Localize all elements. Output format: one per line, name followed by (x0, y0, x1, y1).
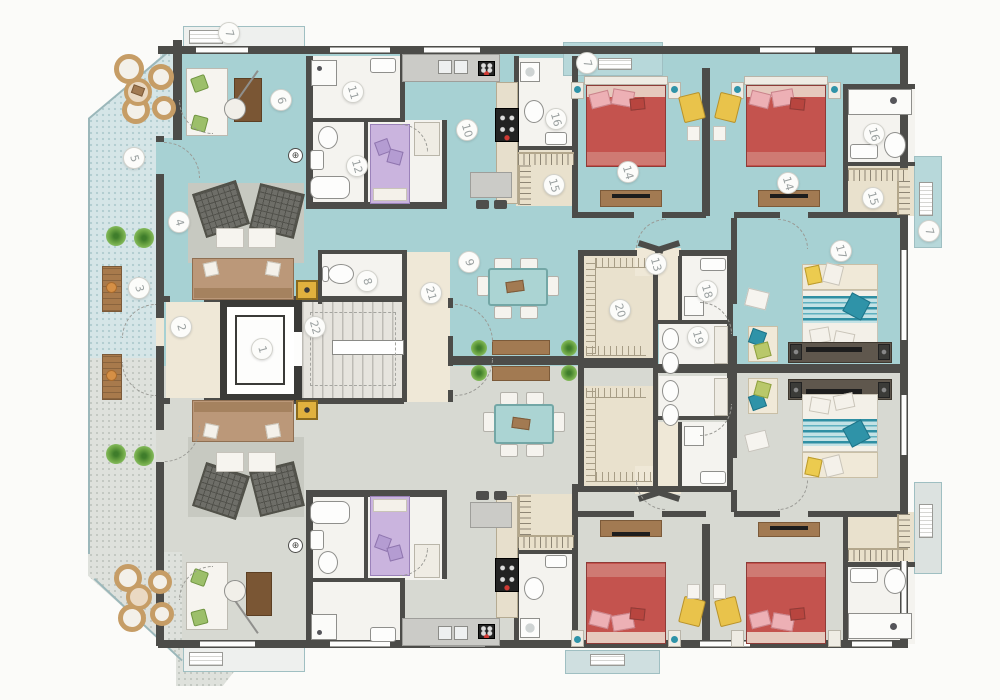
tv (770, 526, 808, 530)
elevator-shaft-wall (220, 300, 302, 307)
cat (106, 370, 117, 381)
window (901, 250, 907, 340)
window (760, 47, 815, 53)
dining-chair (547, 276, 559, 296)
wall (306, 578, 402, 582)
window (852, 641, 892, 647)
closet-hangers (848, 168, 908, 181)
toilet (884, 568, 906, 594)
bed-pillow (629, 607, 645, 621)
side-table (687, 126, 700, 141)
sink-basin (662, 352, 679, 374)
coffee-table (216, 452, 244, 472)
throw-pillow (203, 423, 220, 440)
throw-pillow (203, 261, 220, 278)
sink (700, 471, 726, 484)
lobby-floor (166, 302, 222, 398)
bed-sheet-band (747, 632, 825, 643)
wall (442, 490, 447, 579)
washing-machine (520, 62, 540, 82)
wall-unit-divider (731, 364, 908, 373)
wardrobe-row (586, 258, 596, 354)
stove (495, 558, 519, 592)
wall (306, 118, 402, 122)
closet-hangers (897, 514, 910, 548)
nightstand (828, 630, 841, 647)
elevator-shaft-wall (220, 300, 227, 401)
wall (679, 250, 733, 256)
shower-head (317, 66, 322, 71)
wall (734, 212, 780, 218)
speaker (790, 344, 802, 360)
round-chair (152, 96, 176, 120)
speaker (790, 382, 802, 398)
table-centerpiece (511, 417, 530, 430)
sink (545, 132, 567, 145)
shower (311, 614, 337, 640)
toilet (328, 264, 354, 284)
throw-pillow (265, 423, 281, 439)
sink (850, 568, 878, 583)
tv (612, 532, 650, 536)
bed-pillow (809, 396, 831, 414)
kitchen-sink (454, 60, 468, 74)
coffee-table (248, 452, 276, 472)
door-sensor-icon: ⊕ (288, 148, 303, 163)
lamp (671, 636, 678, 643)
dining-chair (553, 412, 565, 432)
dining-chair (520, 306, 538, 319)
window (901, 395, 907, 455)
wall (364, 492, 368, 580)
bed-pillow (373, 188, 407, 201)
wood-desk (246, 572, 272, 616)
ac-unit (919, 182, 933, 216)
round-chair (148, 570, 172, 594)
floor-plan: ⊕ ⊕ 123456777891011121314141515161617181… (0, 0, 1000, 700)
kitchen-sink (454, 626, 468, 640)
cooktop (478, 61, 495, 76)
headboard (744, 76, 828, 85)
plant (561, 340, 577, 356)
cat (106, 282, 117, 293)
bar-counter (470, 172, 512, 198)
throw-pillow (265, 261, 281, 277)
lamp (734, 86, 741, 93)
bed-fold (747, 152, 825, 165)
side-table (687, 584, 700, 599)
wall (364, 120, 368, 208)
elevator-door-opening (294, 332, 302, 366)
nightstand (731, 630, 744, 647)
shower (848, 89, 912, 115)
wall (702, 524, 710, 642)
wall (702, 68, 710, 216)
tv (770, 194, 808, 198)
wardrobe-row (586, 388, 596, 482)
ac-unit (189, 30, 223, 44)
wall (662, 212, 706, 218)
shower (848, 613, 912, 639)
shower-head (317, 630, 322, 635)
toilet (524, 577, 544, 600)
sink (370, 627, 396, 642)
bar-stool (476, 491, 489, 500)
ac-unit (919, 504, 933, 538)
bed-fold (587, 564, 665, 577)
toilet (318, 551, 338, 574)
console-table (492, 366, 550, 381)
wall-unit-divider (578, 358, 658, 368)
wall (572, 511, 634, 517)
wall (572, 484, 578, 644)
wall (734, 511, 780, 517)
wall (731, 490, 737, 512)
door-opening (156, 430, 164, 462)
floor-lamp (224, 98, 246, 120)
wall (173, 40, 182, 140)
console-table (492, 340, 550, 355)
hallway-floor (404, 252, 450, 402)
window (852, 47, 892, 53)
lamp (831, 86, 838, 93)
sofa-back (194, 288, 292, 298)
sink (370, 58, 396, 73)
sink (700, 258, 726, 271)
sink (850, 144, 878, 159)
wall (678, 256, 682, 320)
bathtub (310, 176, 350, 199)
washing-machine (520, 618, 540, 638)
wall (448, 390, 453, 402)
sink (545, 555, 567, 568)
wall (402, 250, 407, 402)
round-chair (150, 602, 174, 626)
bed-pillow (789, 97, 805, 111)
wardrobe-row (596, 258, 652, 268)
wall (843, 162, 915, 166)
kitchen-sink (438, 626, 452, 640)
window (424, 47, 480, 53)
side-table (713, 584, 726, 599)
window (196, 47, 248, 53)
bed-fold (587, 152, 665, 165)
bed-pillow (373, 499, 407, 512)
plant (106, 226, 126, 246)
round-table (126, 584, 152, 610)
wall (318, 250, 406, 254)
wardrobe-row (586, 388, 646, 398)
side-table (296, 400, 318, 420)
shower-head (890, 97, 897, 104)
tv-dresser (600, 190, 662, 207)
wall (448, 298, 453, 308)
tv (612, 194, 650, 198)
round-chair (148, 64, 174, 90)
shower-head (890, 623, 897, 630)
sink-basin (662, 404, 679, 426)
bar-stool (494, 491, 507, 500)
toilet-tank (322, 266, 329, 282)
wall (572, 56, 578, 216)
door-sensor-glyph: ⊕ (292, 541, 300, 551)
window (200, 641, 255, 647)
closet-hangers (518, 495, 531, 535)
wall (731, 372, 737, 458)
tv (806, 347, 862, 352)
door-opening (156, 318, 164, 346)
bathtub (310, 501, 350, 524)
kitchen-sink (438, 60, 452, 74)
plant (134, 228, 154, 248)
sink-basin (662, 328, 679, 350)
sofa-back (194, 402, 292, 412)
ac-unit (590, 654, 625, 666)
wall (158, 296, 170, 302)
dining-chair (500, 444, 518, 457)
stair-guide-line (310, 312, 396, 386)
bed-fold (747, 564, 825, 577)
terrace-railing (88, 118, 90, 554)
coffee-table (216, 228, 244, 248)
bed-sheet-band (587, 632, 665, 643)
speaker (878, 382, 890, 398)
bed-pillow (789, 607, 805, 621)
coffee-table (248, 228, 276, 248)
elevator-cab (235, 315, 285, 385)
bed-pillow (629, 97, 645, 111)
wall (448, 336, 453, 366)
lamp (671, 86, 678, 93)
lamp (574, 86, 581, 93)
plant (106, 444, 126, 464)
dining-chair (494, 306, 512, 319)
sink (310, 150, 324, 170)
bar-counter (470, 502, 512, 528)
side-table (296, 280, 318, 300)
wall (578, 250, 637, 256)
door-sensor-glyph: ⊕ (292, 151, 300, 161)
tv-console (788, 342, 892, 363)
tv-dresser (758, 190, 820, 207)
plant (134, 446, 154, 466)
door-opening (156, 142, 164, 174)
toilet (318, 126, 338, 149)
wall (158, 398, 170, 404)
stove (495, 108, 519, 142)
speaker (878, 344, 890, 360)
closet-hangers (518, 152, 574, 165)
window (330, 47, 390, 53)
wall (808, 511, 908, 517)
wall (514, 550, 574, 554)
door-sensor-icon: ⊕ (288, 538, 303, 553)
wall (808, 212, 908, 218)
toilet (884, 132, 906, 158)
bar-stool (476, 200, 489, 209)
wardrobe-row (586, 346, 646, 356)
closet-hangers (848, 548, 908, 561)
lamp (574, 636, 581, 643)
sink (310, 530, 324, 550)
plant (561, 365, 577, 381)
side-table (713, 126, 726, 141)
closet-hangers (897, 181, 910, 215)
wall (442, 120, 447, 209)
wall (514, 146, 574, 150)
ac-unit (189, 652, 223, 666)
wall (662, 511, 706, 517)
wall (678, 422, 682, 486)
dining-chair (526, 444, 544, 457)
shower (311, 60, 337, 86)
bar-stool (494, 200, 507, 209)
floor-lamp (224, 580, 246, 602)
closet-hangers (518, 535, 574, 548)
wall (572, 212, 634, 218)
wall (578, 250, 584, 492)
ac-unit (598, 58, 632, 70)
plant (471, 340, 487, 356)
closet-hangers (518, 165, 531, 205)
headboard (584, 76, 668, 85)
sink-basin (662, 380, 679, 402)
cooktop (478, 624, 495, 639)
toilet (524, 100, 544, 123)
